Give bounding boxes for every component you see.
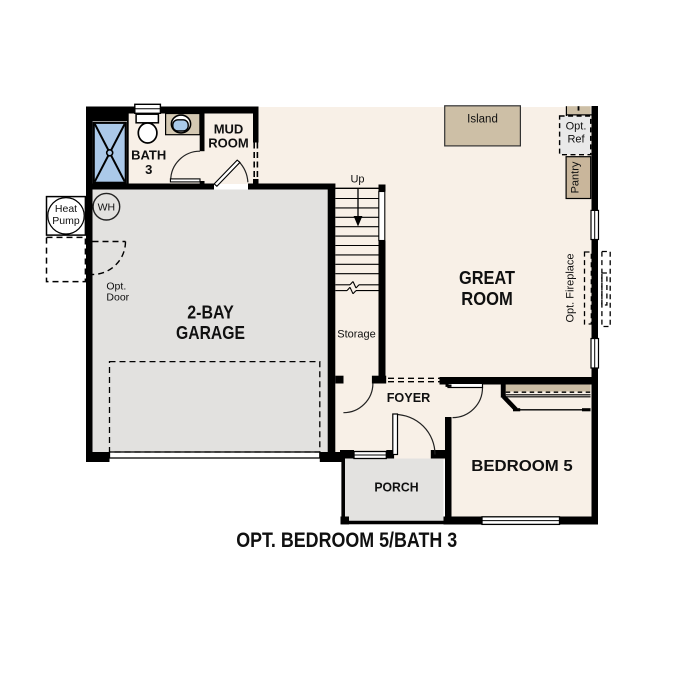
svg-text:Pump: Pump: [52, 215, 80, 227]
svg-text:Ref: Ref: [567, 134, 585, 146]
svg-text:ROOM: ROOM: [208, 135, 248, 150]
svg-text:OPT. BEDROOM 5/BATH 3: OPT. BEDROOM 5/BATH 3: [236, 528, 457, 552]
svg-text:GARAGE: GARAGE: [176, 323, 245, 343]
svg-text:FOYER: FOYER: [387, 390, 431, 405]
svg-text:Heat: Heat: [55, 203, 77, 215]
svg-text:Opt. Fireplace: Opt. Fireplace: [565, 253, 577, 322]
svg-text:MUD: MUD: [214, 122, 244, 137]
svg-text:Pantry: Pantry: [570, 161, 582, 193]
svg-text:Door: Door: [106, 292, 129, 304]
svg-text:Up: Up: [350, 174, 364, 186]
svg-text:BEDROOM 5: BEDROOM 5: [471, 458, 573, 475]
svg-text:3: 3: [145, 162, 152, 177]
svg-text:PORCH: PORCH: [374, 481, 418, 495]
svg-text:GREAT: GREAT: [459, 268, 515, 288]
svg-text:2-BAY: 2-BAY: [187, 303, 234, 323]
svg-text:Storage: Storage: [337, 329, 376, 341]
svg-text:ROOM: ROOM: [461, 289, 513, 309]
svg-text:Island: Island: [467, 113, 498, 125]
svg-text:Opt.: Opt.: [566, 120, 587, 132]
svg-text:BATH: BATH: [131, 148, 166, 163]
svg-text:WH: WH: [98, 202, 116, 214]
